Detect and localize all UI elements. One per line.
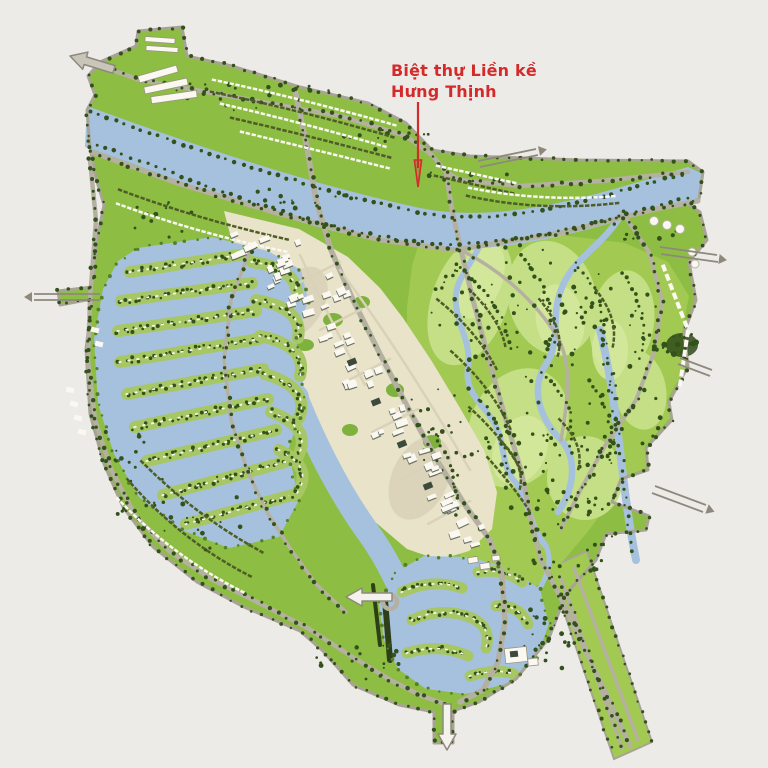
annotation-line-2: Hưng Thịnh	[391, 81, 537, 102]
annotation-line-1: Biệt thự Liền kề	[391, 60, 537, 81]
masterplan-canvas: Biệt thự Liền kề Hưng Thịnh	[0, 0, 768, 768]
masterplan-map	[0, 0, 768, 768]
south-east-corridor	[549, 551, 652, 759]
map-annotation: Biệt thự Liền kề Hưng Thịnh	[391, 60, 537, 102]
